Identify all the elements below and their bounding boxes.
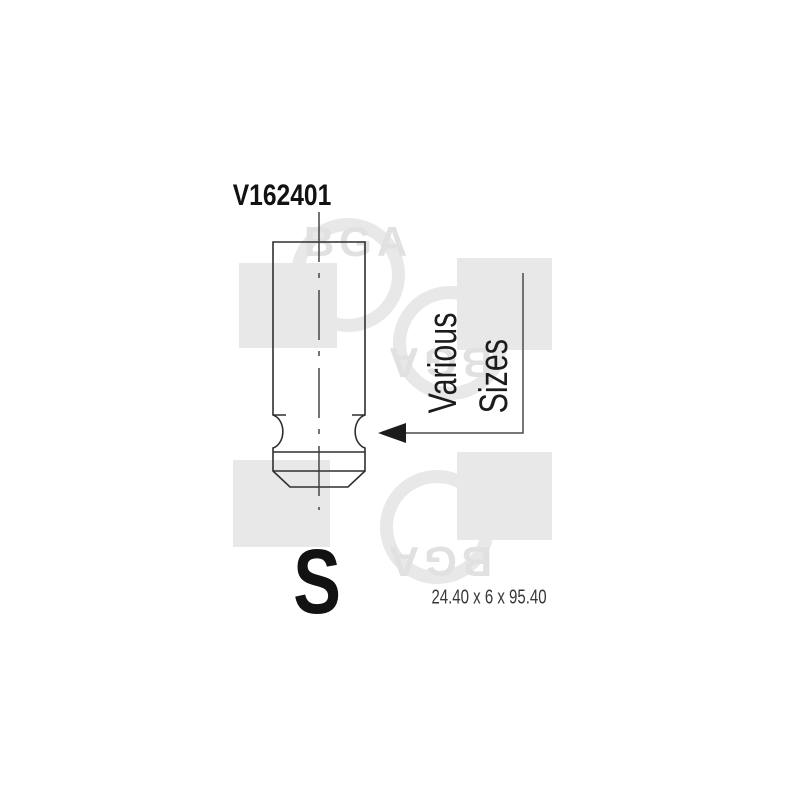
part-number: V162401	[233, 179, 332, 213]
size-note: Various Sizes	[418, 313, 520, 414]
size-note-line1: Various	[418, 313, 469, 414]
valve-drawing	[0, 0, 800, 800]
size-note-line2: Sizes	[469, 313, 520, 414]
variant-letter: S	[293, 536, 341, 628]
product-image: BGA BGA BGA V162401 Various Sizes S 24.4…	[0, 0, 800, 800]
arrow-left-icon	[378, 423, 406, 443]
dimensions-text: 24.40 x 6 x 95.40	[431, 587, 546, 610]
